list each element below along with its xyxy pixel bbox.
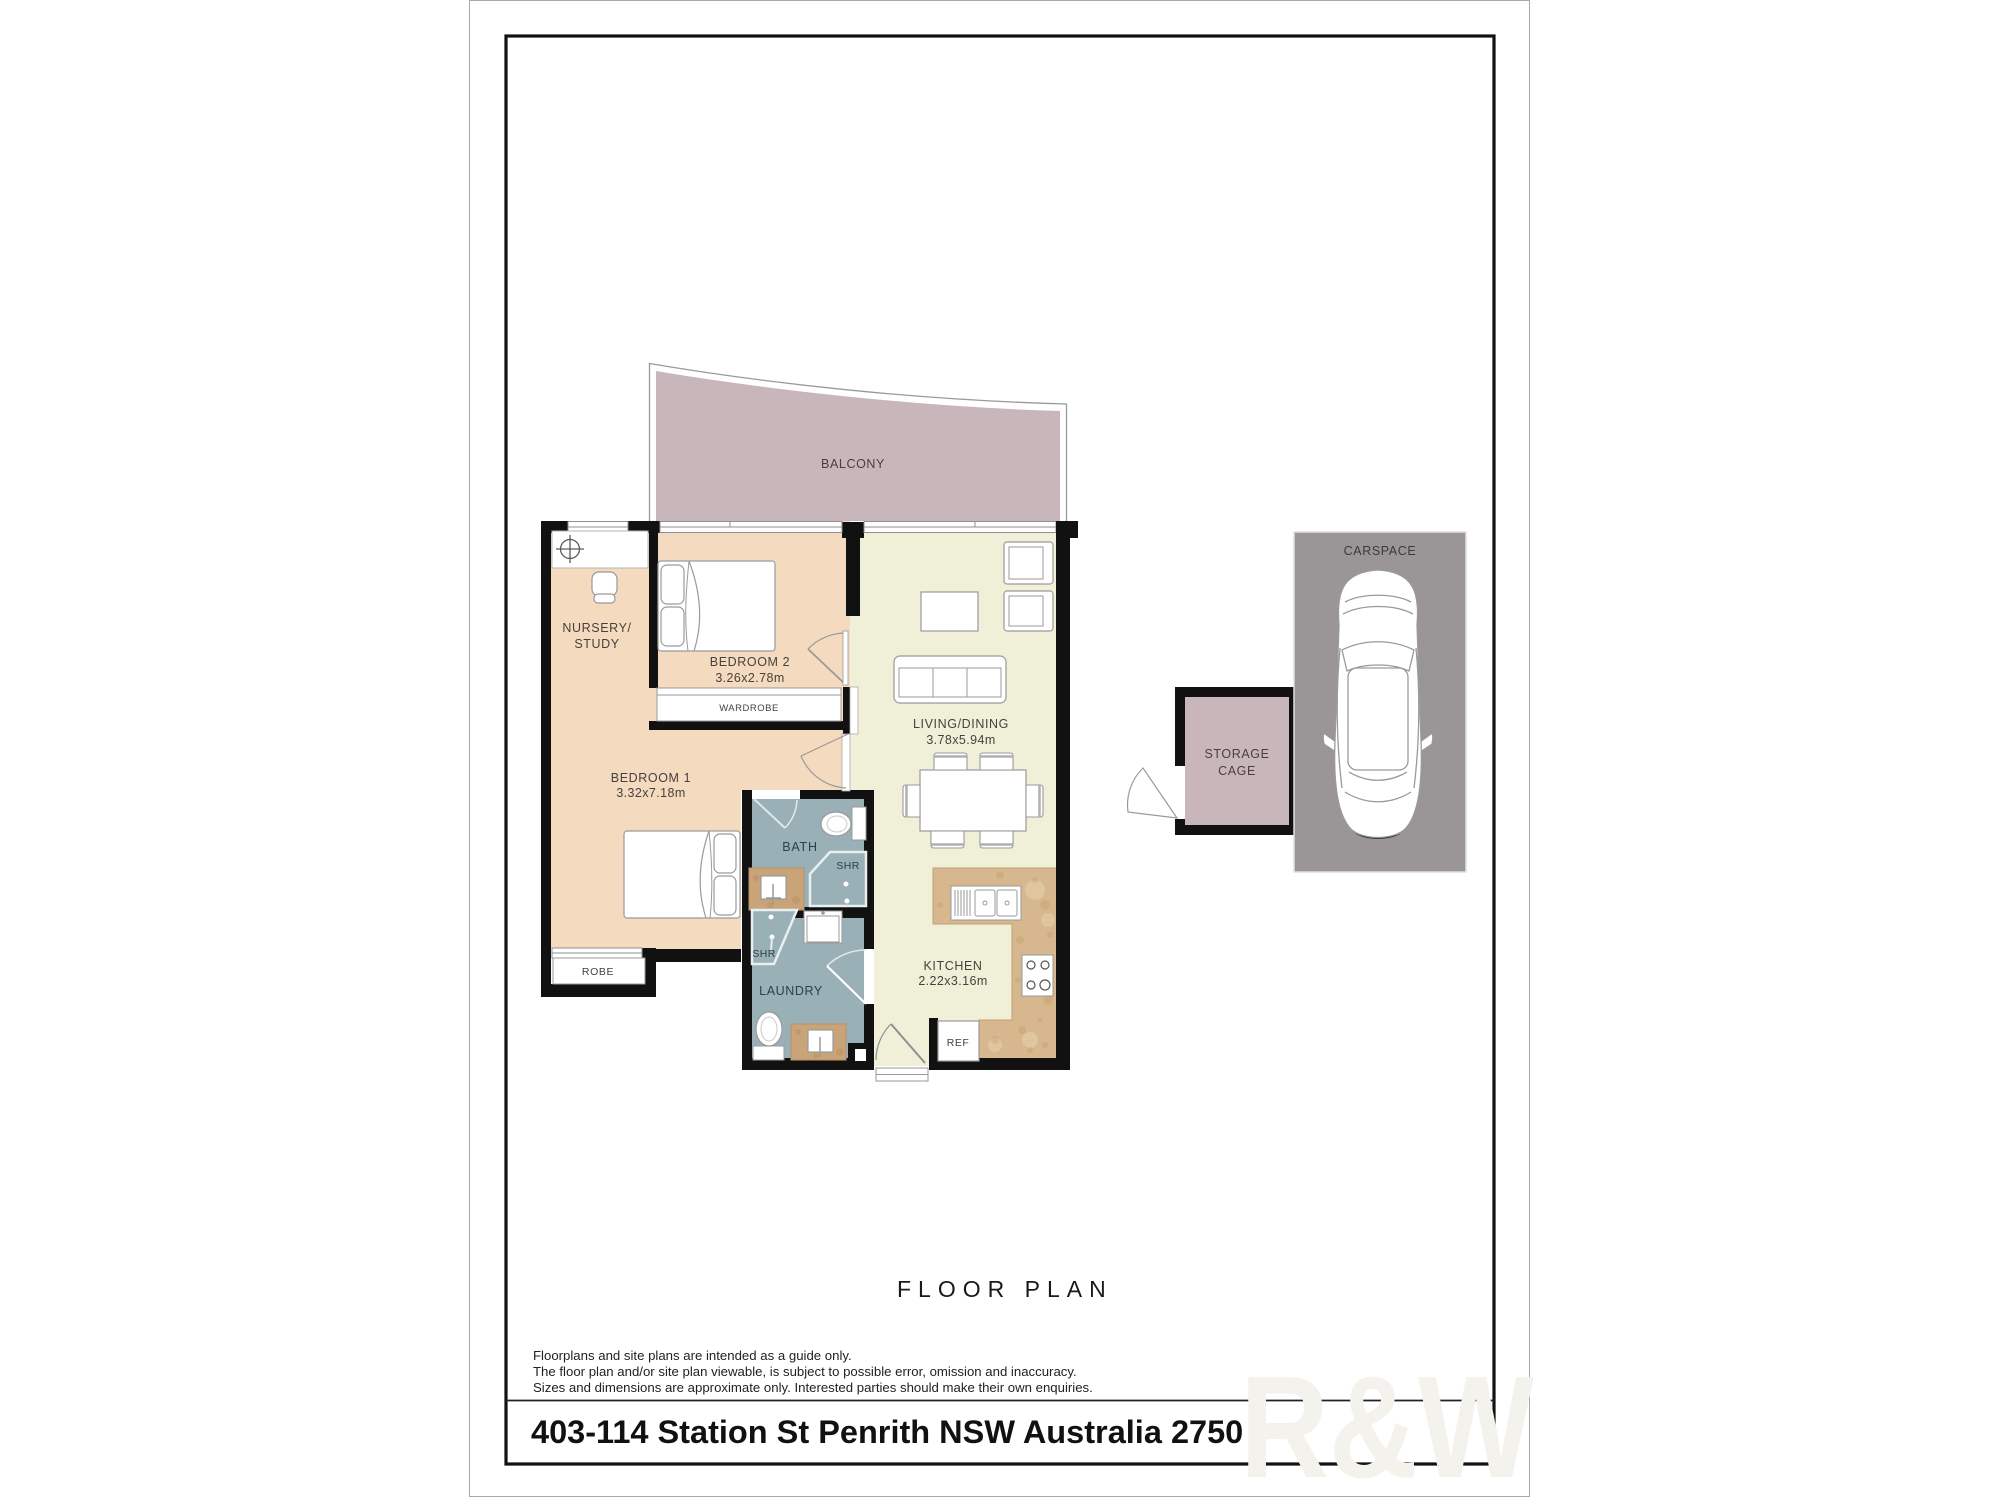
svg-text:SHR: SHR (836, 860, 859, 872)
svg-text:BALCONY: BALCONY (821, 457, 885, 471)
svg-text:BATH: BATH (782, 840, 818, 854)
svg-text:3.32x7.18m: 3.32x7.18m (616, 786, 685, 800)
svg-text:STORAGE: STORAGE (1204, 747, 1269, 761)
svg-text:REF: REF (947, 1037, 970, 1049)
svg-text:R&W: R&W (1240, 1346, 1534, 1500)
svg-text:STUDY: STUDY (574, 637, 619, 651)
svg-text:BEDROOM 1: BEDROOM 1 (611, 771, 691, 785)
svg-text:FLOOR PLAN: FLOOR PLAN (897, 1276, 1113, 1302)
svg-text:CAGE: CAGE (1218, 764, 1256, 778)
svg-text:Sizes and dimensions are appro: Sizes and dimensions are approximate onl… (533, 1380, 1093, 1395)
svg-text:LIVING/DINING: LIVING/DINING (913, 717, 1009, 731)
svg-text:2.22x3.16m: 2.22x3.16m (918, 974, 987, 988)
svg-text:3.78x5.94m: 3.78x5.94m (926, 733, 995, 747)
svg-text:CARSPACE: CARSPACE (1344, 544, 1417, 558)
svg-text:The floor plan and/or site pla: The floor plan and/or site plan viewable… (533, 1364, 1077, 1379)
svg-text:LAUNDRY: LAUNDRY (759, 984, 823, 998)
svg-text:BEDROOM 2: BEDROOM 2 (710, 655, 790, 669)
svg-text:403-114 Station St Penrith NSW: 403-114 Station St Penrith NSW Australia… (531, 1414, 1243, 1450)
svg-text:Floorplans and site plans are: Floorplans and site plans are intended a… (533, 1348, 852, 1363)
svg-text:WARDROBE: WARDROBE (719, 703, 779, 714)
svg-text:ROBE: ROBE (582, 966, 614, 978)
svg-text:SHR: SHR (752, 948, 775, 960)
svg-text:3.26x2.78m: 3.26x2.78m (715, 671, 784, 685)
svg-text:KITCHEN: KITCHEN (923, 959, 982, 973)
svg-text:NURSERY/: NURSERY/ (562, 621, 631, 635)
